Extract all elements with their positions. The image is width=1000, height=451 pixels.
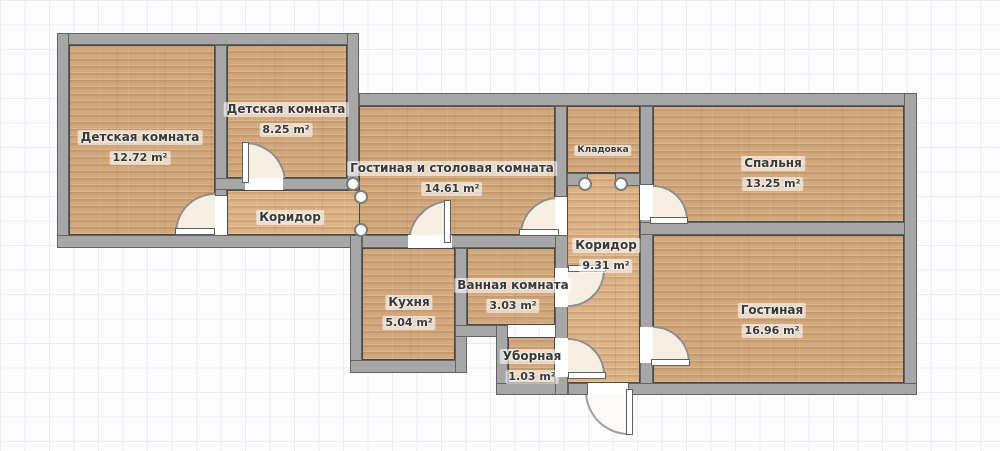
room-area: 3.03 m² [486,299,539,313]
wall [57,33,69,246]
room-area: 1.03 m² [505,370,558,384]
room-label-children-small: Детская комната 8.25 m² [224,98,349,138]
wall-handle[interactable] [578,177,592,191]
door-swing-arc [245,142,286,183]
room-area: 13.25 m² [743,177,804,191]
room-label-corridor-main: Коридор 9.31 m² [572,234,640,274]
wall [359,93,917,106]
door-opening [215,196,227,233]
entrance-door-swing-arc [585,391,629,435]
room-label-corridor-left: Коридор [256,206,324,226]
room-area: 12.72 m² [110,151,171,165]
wall [640,106,653,185]
wall [362,235,568,248]
entrance-door-leaf[interactable] [626,389,633,435]
room-label-bathroom: Ванная комната 3.03 m² [454,274,571,314]
wall [215,178,359,190]
wall [904,93,917,395]
room-name: Спальня [741,156,805,171]
door-leaf[interactable] [650,217,688,224]
room-name: Ванная комната [454,278,571,293]
door-opening [640,327,653,363]
wall-handle[interactable] [614,177,628,191]
door-opening [245,178,283,190]
room-area: 14.61 m² [422,182,483,196]
room-label-children-large: Детская комната 12.72 m² [78,126,203,166]
door-swing-arc [175,193,215,233]
room-area: 9.31 m² [579,259,632,273]
door-swing-arc [653,185,688,220]
room-area: 16.96 m² [742,324,803,338]
entrance-door-opening [588,383,628,395]
door-swing-arc [568,338,605,375]
room-label-kitchen: Кухня 5.04 m² [382,291,435,331]
room-label-pantry: Кладовка [574,137,631,157]
room-name: Кладовка [574,145,631,156]
room-name: Коридор [256,210,324,225]
door-leaf[interactable] [242,142,249,183]
room-label-living-dining: Гостиная и столовая комната 14.61 m² [347,157,557,197]
wall [628,383,917,395]
wall [350,360,467,373]
wall [57,33,359,45]
room-name: Уборная [500,349,565,364]
room-area: 5.04 m² [382,316,435,330]
room-name: Детская комната [78,130,203,145]
door-leaf[interactable] [651,359,690,366]
room-label-bedroom: Спальня 13.25 m² [741,152,805,192]
door-swing-arc [653,326,690,363]
wall [350,235,362,373]
door-swing-arc [568,270,605,307]
door-opening [640,185,653,220]
wall-handle[interactable] [354,223,368,237]
room-name: Кухня [385,295,432,310]
wall [57,235,362,248]
floorplan-canvas: Детская комната 12.72 m² Детская комната… [0,0,1000,451]
room-name: Гостиная и столовая комната [347,161,557,176]
room-name: Детская комната [224,102,349,117]
room-area: 8.25 m² [259,123,312,137]
door-leaf[interactable] [519,229,559,236]
room-name: Гостиная [738,303,806,318]
room-label-living: Гостиная 16.96 m² [738,299,806,339]
door-leaf[interactable] [568,372,606,379]
room-label-toilet: Уборная 1.03 m² [500,345,565,385]
wall [568,383,588,395]
room-name: Коридор [572,238,640,253]
door-leaf[interactable] [444,200,451,243]
door-leaf[interactable] [175,228,215,235]
